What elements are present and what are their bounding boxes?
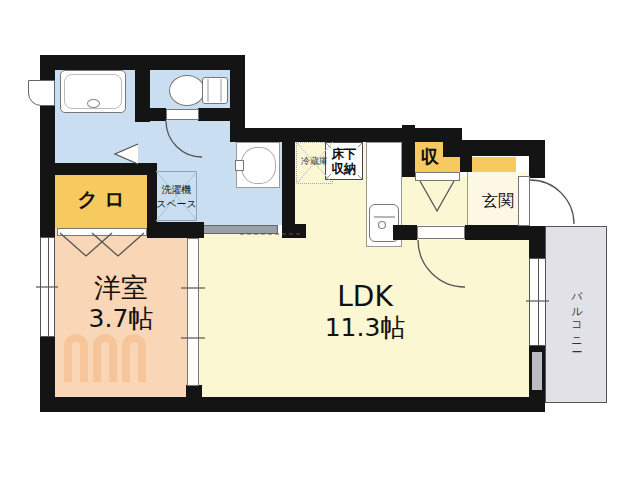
washbasin-icon <box>236 142 280 188</box>
bathtub-icon <box>60 70 126 113</box>
entrance-step <box>472 157 516 172</box>
wall <box>186 385 202 399</box>
closet-door-strip <box>57 228 147 236</box>
wall <box>148 108 166 121</box>
wall <box>460 140 472 172</box>
toilet-door <box>166 109 199 120</box>
toilet-tank-icon <box>202 77 228 104</box>
sliding-door-western <box>187 238 199 386</box>
wall <box>198 108 232 121</box>
balcony-pillar <box>532 352 542 390</box>
window-balcony <box>529 258 546 346</box>
closet-label: クロ <box>55 188 147 212</box>
wall <box>40 163 150 175</box>
ldk-label: LDK 11.3帖 <box>240 280 490 343</box>
floor-hall <box>402 177 467 225</box>
wall <box>40 397 545 412</box>
window-western <box>40 237 55 337</box>
storage-label: 収 <box>413 146 447 167</box>
wall <box>282 224 306 238</box>
entrance-doorway <box>529 178 545 226</box>
balcony-label: バルコニー <box>569 262 582 372</box>
toilet-icon <box>169 75 205 106</box>
watermark-arch <box>122 334 146 382</box>
wall <box>465 225 545 240</box>
watermark-logo <box>64 334 151 386</box>
western-room-label: 洋室 3.7帖 <box>55 272 187 333</box>
wall <box>40 55 55 412</box>
floor-plan: 洋室 3.7帖 LDK 11.3帖 クロ 洗濯機 スペース 冷蔵庫 床下 収納 … <box>0 0 640 480</box>
exterior-fixture <box>28 80 55 106</box>
hall-door <box>417 226 465 239</box>
wall <box>147 222 204 238</box>
wall <box>393 225 417 240</box>
watermark-arch <box>64 334 88 382</box>
wall <box>230 128 462 142</box>
laundry-space-label: 洗濯機 スペース <box>154 183 199 211</box>
wall <box>282 130 295 238</box>
entrance-label: 玄関 <box>467 192 529 211</box>
wall <box>529 156 545 178</box>
underfloor-storage-label: 床下 収納 <box>325 146 363 176</box>
sliding-door-washroom <box>202 225 278 234</box>
storage-door-strip <box>415 172 460 181</box>
watermark-arch <box>93 334 117 382</box>
